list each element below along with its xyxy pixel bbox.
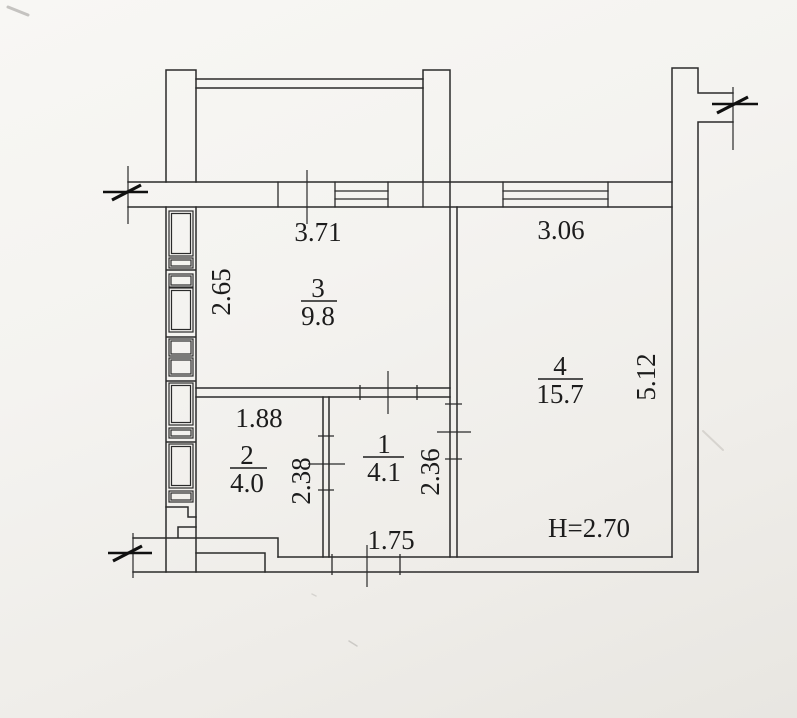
dimension-witness-lines xyxy=(128,87,733,587)
dim-room1-height: 2.36 xyxy=(415,448,445,495)
floor-plan-page: 3.71 3.06 1.88 1.75 H=2.70 2.65 2.38 2.3… xyxy=(0,0,797,718)
dim-room2-height: 2.38 xyxy=(286,457,316,504)
paper-artifacts xyxy=(8,7,723,646)
room-2-number: 2 xyxy=(240,440,254,470)
room-2-label: 2 4.0 xyxy=(230,440,267,498)
room-3-label: 3 9.8 xyxy=(301,273,337,331)
room-1-label: 1 4.1 xyxy=(363,429,404,487)
floor-plan-canvas: 3.71 3.06 1.88 1.75 H=2.70 2.65 2.38 2.3… xyxy=(0,0,797,718)
room-1-number: 1 xyxy=(377,429,391,459)
room-4-area: 15.7 xyxy=(536,379,583,409)
room-4-number: 4 xyxy=(553,351,567,381)
room-1-area: 4.1 xyxy=(367,457,401,487)
ceiling-height-label: H=2.70 xyxy=(548,513,630,543)
room-2-area: 4.0 xyxy=(230,468,264,498)
dim-top-room3-width: 3.71 xyxy=(294,217,341,247)
dim-room1-bottom-width: 1.75 xyxy=(367,525,414,555)
dim-top-room4-width: 3.06 xyxy=(537,215,584,245)
room-4-label: 4 15.7 xyxy=(536,351,583,409)
left-window-column xyxy=(166,211,196,502)
labels: 3.71 3.06 1.88 1.75 H=2.70 2.65 2.38 2.3… xyxy=(206,215,661,555)
balcony xyxy=(166,70,450,182)
room-3-number: 3 xyxy=(311,273,325,303)
room-3-area: 9.8 xyxy=(301,301,335,331)
dim-room4-height: 5.12 xyxy=(631,353,661,400)
dim-room2-width: 1.88 xyxy=(235,403,282,433)
dim-left-wall-height: 2.65 xyxy=(206,268,236,315)
windows xyxy=(278,182,608,207)
